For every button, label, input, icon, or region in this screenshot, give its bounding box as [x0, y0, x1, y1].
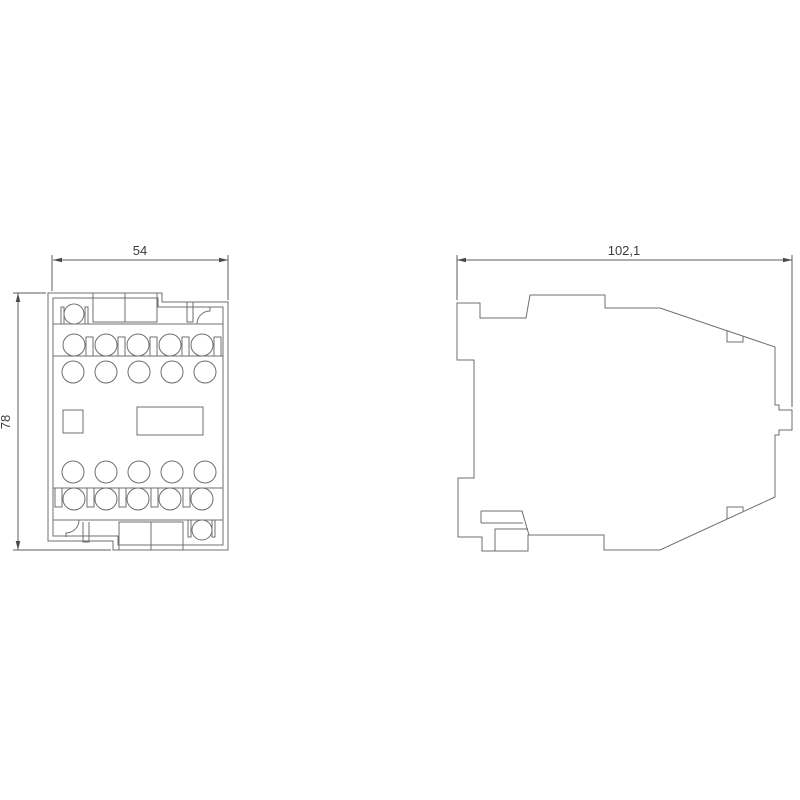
- top-right-quarter-arc: [197, 307, 210, 324]
- clamp-slot: [150, 337, 157, 356]
- din-clip-arm: [481, 511, 529, 535]
- bottom-left-quarter-arc: [66, 520, 79, 537]
- screw-terminal-circle: [194, 361, 216, 383]
- clamp-slot: [86, 337, 93, 356]
- screw-terminal-circle: [128, 461, 150, 483]
- extension-line: [13, 293, 111, 550]
- clamp-circle: [191, 488, 213, 510]
- screw-head-circle: [64, 304, 84, 324]
- arrowhead-left: [53, 258, 62, 263]
- coil-terminal-window: [63, 410, 83, 433]
- clamp-slot: [87, 488, 94, 507]
- contactor-dimension-drawing: 54 78 102,1: [0, 0, 800, 800]
- bottom-left-slot: [83, 522, 89, 542]
- arrowhead-bottom: [16, 541, 21, 550]
- clamp-slot: [183, 488, 190, 507]
- front-outer-outline: [48, 293, 228, 550]
- screw-head-circle: [192, 520, 212, 540]
- arrowhead-top: [16, 293, 21, 302]
- top-mounting-notches: [93, 293, 157, 322]
- bottom-mounting-notches: [119, 522, 183, 550]
- clamp-circle: [127, 334, 149, 356]
- front-separator-lines: [53, 324, 223, 520]
- screw-terminal-circle: [62, 461, 84, 483]
- dim-side-depth: [457, 255, 792, 407]
- side-outer-profile: [457, 295, 792, 551]
- screw-terminal-circle: [95, 361, 117, 383]
- arrowhead-right: [219, 258, 228, 263]
- screw-terminal-circle: [194, 461, 216, 483]
- dim-front-width-label: 54: [133, 243, 147, 258]
- clamp-circle: [63, 334, 85, 356]
- terminal-slot: [212, 520, 215, 537]
- terminal-slot: [61, 307, 64, 324]
- clamp-slot: [55, 488, 62, 507]
- clamp-circle: [63, 488, 85, 510]
- terminal-slot: [188, 520, 191, 537]
- clamp-slot: [118, 337, 125, 356]
- dim-front-height: [13, 293, 111, 550]
- screw-terminal-circle: [128, 361, 150, 383]
- slope-notch-upper: [727, 331, 743, 342]
- clamp-circle: [95, 334, 117, 356]
- screw-terminal-circle: [95, 461, 117, 483]
- drawing-canvas: 54 78 102,1: [0, 0, 800, 800]
- clamp-circle: [191, 334, 213, 356]
- front-upper-clamp-row: [63, 334, 221, 356]
- front-lower-screw-row: [62, 461, 216, 483]
- clamp-circle: [127, 488, 149, 510]
- arrowhead-left: [457, 258, 466, 263]
- screw-terminal-circle: [161, 361, 183, 383]
- front-upper-screw-row: [62, 361, 216, 383]
- clamp-slot: [119, 488, 126, 507]
- clamp-slot: [214, 337, 221, 356]
- screw-terminal-circle: [62, 361, 84, 383]
- label-plate: [137, 407, 203, 435]
- dim-front-height-label: 78: [0, 415, 13, 429]
- clamp-circle: [159, 488, 181, 510]
- clamp-circle: [95, 488, 117, 510]
- clamp-slot: [182, 337, 189, 356]
- din-clip-tab: [495, 529, 528, 551]
- front-lower-clamp-row: [55, 488, 213, 510]
- clamp-circle: [159, 334, 181, 356]
- terminal-slot: [85, 307, 88, 324]
- dim-side-depth-label: 102,1: [608, 243, 641, 258]
- arrowhead-right: [783, 258, 792, 263]
- side-view: [457, 295, 792, 551]
- clamp-slot: [151, 488, 158, 507]
- screw-terminal-circle: [161, 461, 183, 483]
- front-view: [48, 293, 228, 550]
- top-right-slot: [187, 302, 193, 322]
- extension-line: [457, 255, 792, 407]
